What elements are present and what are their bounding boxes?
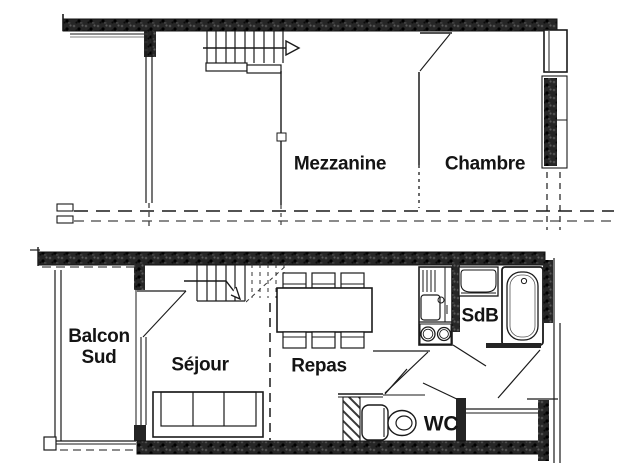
chair (312, 273, 335, 288)
chair (283, 332, 306, 348)
balcony-door-swing (137, 291, 186, 337)
lower-stair-direction-arrow (184, 281, 240, 299)
lower-staircase (184, 262, 290, 302)
chair (341, 273, 364, 288)
kitchenette (419, 267, 452, 345)
room-label-sdb: SdB (461, 306, 498, 327)
upper-right-window (544, 30, 567, 72)
room-label-mezzanine: Mezzanine (294, 154, 386, 175)
washbasin (459, 267, 498, 296)
table-top (277, 288, 372, 332)
upper-staircase (203, 31, 299, 73)
wc-hatched-wall (343, 397, 360, 441)
sdb-door-swing (453, 345, 486, 366)
door-swing (423, 383, 461, 401)
wc-door-swing (385, 369, 407, 394)
room-label-balcon-sud: Balcon Sud (68, 326, 130, 368)
mezzanine-edge-wall (277, 71, 286, 226)
upper-exterior-wall (63, 14, 557, 37)
sdb-south-wall (486, 343, 541, 348)
floor-plan-drawing (0, 0, 620, 465)
entry-door-swing (498, 350, 540, 398)
room-label-balcon-line2: Sud (68, 347, 130, 368)
dining-table (277, 273, 372, 348)
upper-stair-direction-arrow (203, 41, 299, 55)
room-label-balcon-line1: Balcon (68, 326, 130, 347)
chair (312, 332, 335, 348)
chambre-door-swing (420, 34, 450, 71)
room-label-chambre: Chambre (445, 154, 525, 175)
chair (283, 273, 306, 288)
upper-floor-plan (57, 14, 614, 230)
bathtub (502, 267, 543, 345)
chambre-partition-and-door (419, 33, 452, 208)
sofa (153, 392, 263, 437)
room-label-sejour: Séjour (171, 355, 228, 376)
floor-plan-page: Mezzanine Chambre Balcon Sud Séjour Repa… (0, 0, 620, 465)
room-label-wc: WC (424, 414, 458, 435)
toilet (362, 405, 416, 440)
room-label-repas: Repas (291, 356, 347, 377)
upper-facade-dashed-line (57, 204, 614, 223)
chair (341, 332, 364, 348)
upper-left-wall (144, 31, 156, 228)
upper-right-wall (542, 76, 567, 230)
